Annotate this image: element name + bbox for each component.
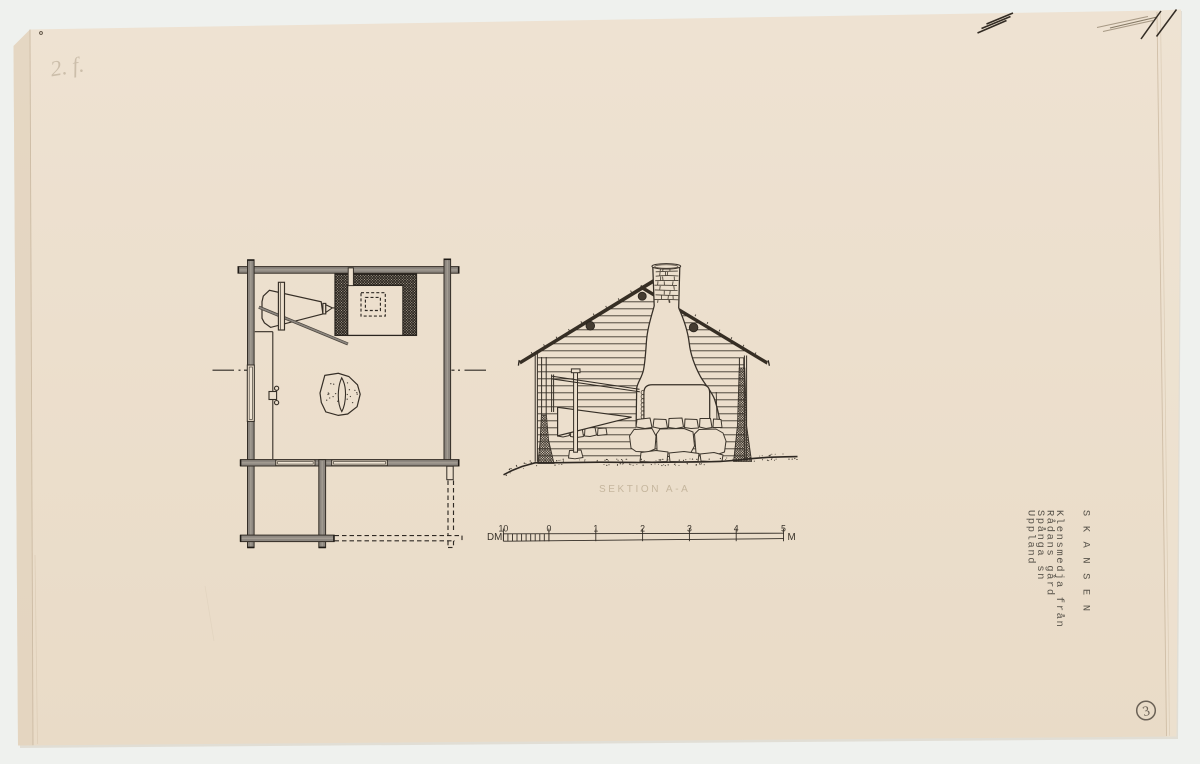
svg-text:Uppland: Uppland (1025, 510, 1037, 565)
svg-text:SEKTION A-A: SEKTION A-A (599, 484, 690, 495)
svg-text:DM: DM (487, 532, 502, 543)
svg-text:1: 1 (593, 524, 598, 534)
svg-text:2. f.: 2. f. (49, 51, 86, 81)
svg-text:3: 3 (687, 524, 692, 534)
svg-text:M: M (788, 532, 796, 543)
svg-text:5: 5 (781, 524, 786, 534)
svg-text:0: 0 (546, 524, 551, 534)
svg-text:4: 4 (734, 524, 739, 534)
svg-text:S K A N S E N: S K A N S E N (1079, 510, 1091, 613)
svg-text:2: 2 (640, 524, 645, 534)
